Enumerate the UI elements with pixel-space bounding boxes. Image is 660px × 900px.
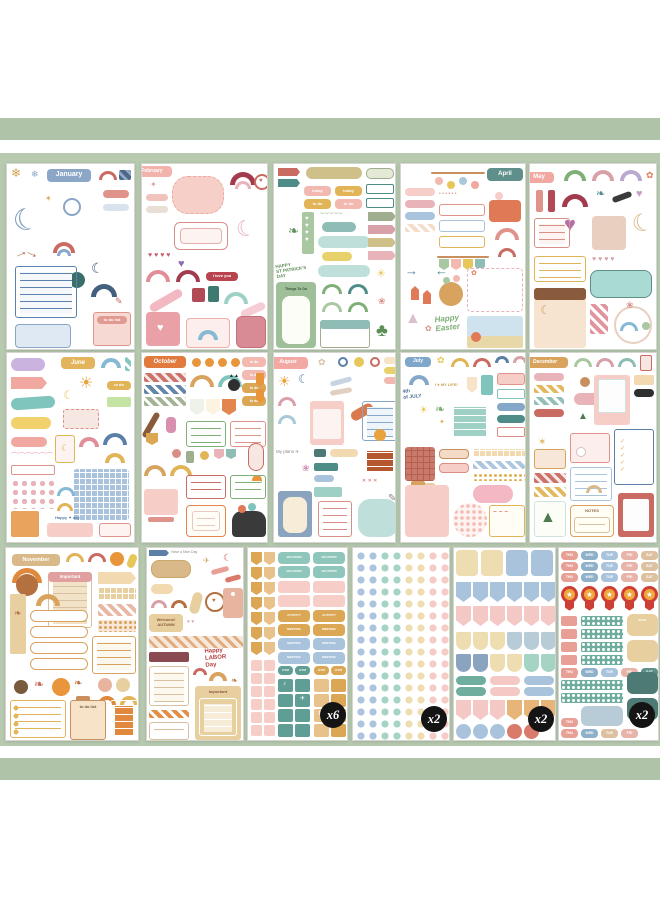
flag-sticker	[214, 449, 224, 459]
circ-sticker	[471, 332, 481, 342]
dotg-sticker	[561, 680, 623, 690]
dotg-sticker	[98, 620, 136, 632]
circ-sticker	[228, 379, 240, 391]
circ-sticker	[14, 680, 28, 694]
pill-sticker	[384, 367, 396, 374]
sticker-sheet-november: NovemberImportant❧❧❧to do list	[5, 547, 139, 741]
month-label: May	[529, 172, 554, 183]
award-ribbon-icon: ★	[621, 586, 638, 612]
lbl-sticker: Important	[48, 572, 92, 582]
lbl-sticker: GYM	[278, 666, 293, 675]
rect-sticker	[439, 236, 485, 248]
arch-sticker	[620, 170, 642, 181]
txt-sticker: ❧	[14, 608, 22, 618]
rect-sticker	[320, 320, 370, 329]
arch-sticker	[88, 553, 106, 562]
rect-sticker	[318, 236, 370, 248]
txt-sticker: • • • • • •	[439, 192, 456, 198]
rect-sticker	[208, 286, 219, 302]
arch-sticker	[596, 358, 614, 367]
circ-sticker	[231, 592, 235, 596]
txt-sticker: ✿	[646, 170, 654, 180]
rect-sticker	[30, 642, 88, 654]
txt-sticker: ⌒⌒⌒⌒⌒⌒	[11, 453, 53, 461]
dotg-sticker	[561, 693, 623, 703]
month-label: August	[273, 357, 308, 369]
flag-sticker	[524, 606, 539, 626]
txt-sticker: ♥	[636, 188, 643, 201]
txt-sticker: ☾	[629, 208, 657, 240]
rect-sticker	[634, 375, 654, 385]
pill-sticker	[11, 358, 45, 371]
lbl-sticker: MEETING	[313, 638, 345, 650]
circ-sticker	[447, 181, 455, 189]
circ-sticker	[218, 358, 227, 367]
arch-sticker	[562, 194, 588, 207]
month-label: December	[529, 357, 568, 368]
flag-sticker	[264, 597, 275, 610]
txt-sticker: ☾	[61, 443, 69, 453]
rect-sticker	[251, 712, 262, 723]
circ-sticker	[248, 503, 256, 511]
txt-sticker: 4th of JULY	[402, 388, 422, 401]
arch-sticker	[151, 600, 167, 608]
month-label: November	[12, 554, 60, 566]
top-divider-band	[0, 118, 660, 140]
list-sticker	[449, 401, 491, 441]
arch-sticker	[322, 302, 342, 312]
lbl-sticker: ACTIVITY	[278, 610, 310, 622]
rect-sticker	[10, 594, 26, 654]
txt-sticker: Have a Nice Day	[171, 550, 197, 554]
pill-sticker	[330, 387, 353, 396]
arrw-sticker	[11, 377, 47, 389]
rect-sticker	[534, 449, 566, 469]
lbl-sticker: ACTIVITY	[313, 610, 345, 622]
flag-sticker	[456, 582, 471, 602]
rect-sticker	[314, 449, 326, 457]
arrw-sticker	[98, 572, 136, 584]
lbl-sticker: SAT	[641, 562, 658, 571]
lbl-sticker: VACATION	[278, 566, 310, 578]
arrw-sticker	[149, 550, 169, 556]
sticker-sheet-june: June☀to do☾☾⌒⌒⌒⌒⌒⌒Happy ✦ day	[6, 352, 135, 543]
list-sticker	[92, 636, 136, 674]
rect-sticker	[314, 679, 329, 692]
circ-sticker	[200, 451, 209, 460]
lbl-sticker: FRI	[621, 729, 638, 738]
lbl-sticker: WED	[581, 573, 598, 582]
lbl-sticker: THU	[561, 573, 578, 582]
rect-sticker	[561, 655, 577, 665]
arch-sticker	[495, 228, 519, 240]
plane-icon: ✈	[300, 696, 305, 703]
dotg-sticker	[473, 473, 525, 481]
flag-sticker	[206, 399, 220, 415]
rect-sticker	[634, 389, 654, 397]
rect-sticker	[640, 355, 652, 371]
txt-sticker: ♥	[178, 258, 185, 271]
rect-sticker	[295, 679, 310, 692]
flag-sticker	[264, 642, 275, 655]
sticker-sheet-october: Octoberto doto doto doto do▲▲	[141, 352, 268, 543]
quantity-badge: x2	[528, 706, 554, 732]
rect-sticker	[313, 409, 341, 439]
washi-sticker	[144, 373, 186, 382]
circ-sticker	[471, 181, 479, 189]
lbl-sticker: TUE	[601, 573, 618, 582]
txt-sticker: →	[405, 264, 418, 279]
arch-sticker	[618, 358, 636, 367]
lbl-sticker: to do	[107, 381, 131, 390]
rect-sticker	[251, 699, 262, 710]
bottom-divider-band	[0, 758, 660, 780]
rect-sticker	[295, 724, 310, 737]
rect-sticker	[561, 616, 577, 626]
rect-sticker	[439, 220, 485, 232]
list-sticker	[534, 218, 570, 248]
washi-sticker	[534, 385, 564, 393]
rect-sticker	[561, 642, 577, 652]
lbl-sticker: WED	[581, 729, 598, 738]
rect-sticker	[548, 190, 555, 212]
lbl-sticker: NOTES	[582, 508, 602, 514]
txt-sticker: ❄	[31, 169, 39, 179]
list-sticker	[192, 511, 220, 531]
txt-sticker: ♣	[376, 320, 388, 341]
arch-sticker	[146, 270, 170, 282]
flag-sticker	[411, 286, 419, 300]
lbl-sticker: FRI	[621, 562, 638, 571]
rect-sticker	[314, 487, 342, 497]
txt-sticker: ☾	[63, 389, 74, 403]
flag-sticker	[507, 582, 522, 602]
rect-sticker	[282, 296, 310, 344]
rect-sticker	[541, 632, 556, 650]
flag-sticker	[264, 582, 275, 595]
rect-sticker	[11, 395, 56, 410]
arch-sticker	[57, 503, 73, 511]
txt-sticker: ❧	[435, 403, 445, 417]
lbl-sticker: GYM	[295, 666, 310, 675]
rect-sticker	[192, 288, 205, 302]
month-label: February	[141, 166, 172, 177]
rect-sticker	[63, 409, 99, 429]
rect-sticker	[366, 184, 394, 194]
lbl-sticker: MEETING	[313, 624, 345, 636]
pill-sticker	[306, 167, 362, 179]
month-label: June	[61, 357, 95, 369]
txt-sticker: HAPPY ST PATRICK'S DAY	[275, 260, 307, 280]
txt-sticker: ☀	[278, 373, 291, 389]
rect-sticker	[186, 451, 194, 463]
rect-sticker	[627, 640, 658, 662]
circ-sticker	[110, 552, 124, 566]
plaid-sticker	[473, 449, 525, 457]
rect-sticker	[536, 190, 543, 212]
circ-sticker	[192, 358, 201, 367]
circ-sticker	[435, 177, 443, 185]
lbl-sticker: VACATION	[313, 566, 345, 578]
lbl-sticker: today	[304, 186, 331, 196]
lbl-sticker: SAT	[641, 551, 658, 560]
txt-sticker: Happy Easter	[434, 313, 460, 334]
rect-sticker	[264, 673, 275, 684]
flag-sticker	[507, 700, 522, 720]
sticker-sheet-april: April• • • • • •→←✿▲Happy Easter✿	[400, 163, 526, 350]
rect-sticker	[30, 658, 88, 670]
rect-sticker	[278, 581, 310, 593]
pill-sticker	[188, 591, 203, 615]
arch-sticker	[495, 356, 509, 363]
lbl-sticker: THU	[561, 729, 578, 738]
rect-sticker	[313, 595, 345, 607]
flag-sticker	[541, 582, 556, 602]
rect-sticker	[236, 316, 266, 348]
sticker-sheet-july: July✿4th of JULYI ♥ MY LIFE!☀❧✦⌣ ⌣ ⌣	[400, 352, 526, 543]
txt-sticker: ❀	[626, 300, 634, 310]
lbl-sticker: to do	[242, 357, 266, 367]
circ-sticker	[116, 678, 130, 692]
rect-sticker	[295, 709, 310, 722]
arch-sticker	[322, 284, 342, 294]
pill-sticker	[490, 676, 520, 685]
lbl-sticker: WED	[581, 551, 598, 560]
pill-sticker	[330, 376, 353, 387]
pill-sticker	[405, 200, 435, 208]
arch-sticker	[193, 668, 207, 675]
rect-sticker	[278, 724, 293, 737]
flag-sticker	[467, 377, 477, 393]
rect-sticker	[456, 632, 471, 650]
rect-sticker	[278, 595, 310, 607]
txt-sticker: ✈	[203, 556, 210, 565]
txt-sticker: ✦	[439, 419, 445, 427]
circ-sticker	[52, 678, 70, 696]
arch-sticker	[224, 292, 248, 304]
arrw-sticker	[368, 212, 396, 221]
plaid-sticker	[73, 469, 129, 521]
circ-sticker	[172, 449, 181, 458]
washi-sticker	[149, 710, 189, 718]
lbl-sticker: VACATION	[278, 552, 310, 564]
pill-sticker	[384, 377, 396, 384]
rect-sticker	[11, 511, 39, 537]
rect-sticker	[524, 632, 539, 650]
list-sticker	[15, 266, 77, 318]
rect-sticker	[581, 706, 623, 726]
rect-sticker	[251, 673, 262, 684]
flag-sticker	[222, 399, 236, 415]
sticker-sheet-march: todaytodayto doto do♥ ♥ ♥ ♥⌣⌣⌣⌣⌣❧HAPPY S…	[273, 163, 396, 350]
rect-sticker	[623, 499, 649, 531]
txt-sticker: ♥ ♥ ♥ ♥	[592, 256, 614, 264]
flag-sticker	[264, 612, 275, 625]
pill-sticker	[456, 687, 486, 696]
rect-sticker	[313, 581, 345, 593]
dotg-sticker	[581, 616, 623, 626]
txt-sticker: ❀	[302, 463, 310, 473]
lbl-sticker: TUE	[601, 729, 618, 738]
arrw-sticker	[278, 168, 300, 176]
sticker-sheet-may: May✿❧♥♥☾♥ ♥ ♥ ♥☾❀	[529, 163, 657, 350]
lbl-sticker: Important	[199, 689, 237, 696]
list-sticker	[534, 256, 586, 282]
flag-sticker	[251, 612, 262, 625]
award-ribbon-icon: ★	[561, 586, 578, 612]
arch-sticker	[101, 358, 121, 368]
flag-sticker	[524, 582, 539, 602]
txt-sticker: ♥	[157, 322, 164, 335]
sticker-sheet-august: August✿☀☾My plans ✈❀✕ ✕ ✕✎	[273, 352, 396, 543]
txt-sticker: ♥ ♥ ♥ ♥	[305, 216, 309, 244]
pill-sticker	[405, 212, 435, 220]
award-ribbon-icon: ★	[641, 586, 658, 612]
sticker-sheet-january: ❄❄January☾✶→→☾to do list✎	[6, 163, 135, 350]
rect-sticker	[264, 660, 275, 671]
pill-sticker	[225, 574, 242, 583]
arch-sticker	[278, 397, 296, 406]
month-label: July	[405, 357, 431, 367]
month-label: October	[144, 356, 186, 368]
rect-sticker	[439, 204, 485, 216]
txt-sticker: I ♥ MY LIFE!	[435, 383, 458, 388]
arch-sticker	[564, 170, 586, 181]
pill-sticker	[330, 449, 358, 457]
lbl-sticker: FRI	[621, 573, 638, 582]
rect-sticker	[331, 679, 346, 692]
circ-sticker	[374, 429, 386, 441]
rect-sticker	[489, 200, 521, 222]
pill-sticker	[11, 437, 47, 447]
arch-sticker	[176, 270, 200, 282]
washi-sticker	[119, 170, 131, 180]
lbl-sticker: today	[335, 186, 362, 196]
txt-sticker: ✦	[150, 180, 157, 189]
rect-sticker	[248, 443, 264, 471]
txt-sticker: Happy ✦ day	[55, 516, 80, 521]
lbl-sticker: THU	[561, 718, 578, 727]
lbl-sticker: Things To Do	[278, 285, 314, 293]
rect-sticker	[251, 686, 262, 697]
flag-sticker	[190, 399, 204, 415]
list-sticker	[362, 445, 396, 475]
flag-sticker	[473, 700, 488, 720]
rect-sticker	[497, 427, 525, 437]
lbl-sticker: VACATION	[313, 552, 345, 564]
flag-sticker	[456, 606, 471, 626]
rect-sticker	[366, 168, 394, 179]
washi-sticker	[534, 487, 566, 497]
rect-sticker	[148, 517, 174, 522]
circ-sticker	[231, 358, 240, 367]
rect-sticker	[251, 660, 262, 671]
txt-sticker: ☾	[223, 553, 232, 565]
list-sticker	[149, 722, 189, 740]
rect-sticker	[490, 632, 505, 650]
circ-sticker	[354, 357, 364, 367]
txt-sticker: ❄	[11, 167, 21, 181]
ring-sticker	[338, 357, 348, 367]
sticker-sheet-september: Have a Nice Day✈☾♥Welcome! AUTUMN♥ ♥Happ…	[146, 547, 244, 741]
rect-sticker	[358, 499, 396, 537]
flag-sticker	[490, 582, 505, 602]
rect-sticker	[151, 584, 173, 594]
txt-sticker: ❧	[231, 676, 238, 685]
rect-sticker	[366, 198, 394, 208]
rect-sticker	[431, 172, 485, 174]
arch-sticker	[451, 358, 469, 367]
arch-sticker	[105, 453, 125, 463]
txt-sticker: ✿	[425, 324, 432, 333]
pill-sticker	[103, 190, 129, 198]
rect-sticker	[11, 417, 51, 429]
lbl-sticker: THU	[561, 668, 578, 677]
dotg-sticker	[379, 550, 403, 740]
txt-sticker: ▲	[540, 509, 556, 527]
washi-sticker	[144, 397, 186, 406]
pill-sticker	[524, 687, 554, 696]
flag-sticker	[507, 606, 522, 626]
arch-sticker	[209, 672, 227, 681]
lbl-sticker: GYM	[314, 666, 329, 675]
list-sticker	[570, 467, 612, 501]
pill-sticker	[534, 409, 564, 417]
washi-sticker	[144, 385, 186, 394]
circ-sticker	[453, 275, 460, 282]
lbl-sticker: MEETING	[278, 638, 310, 650]
arch-sticker	[99, 171, 117, 180]
txt-sticker: ☾	[9, 201, 44, 241]
arch-sticker	[278, 415, 296, 424]
circ-sticker	[507, 724, 522, 739]
arrw-sticker	[368, 251, 396, 260]
txt-sticker: ❧	[34, 678, 44, 692]
rect-sticker	[592, 216, 626, 250]
lbl-sticker: FRI	[621, 551, 638, 560]
rect-sticker	[283, 497, 307, 533]
flag-sticker	[251, 582, 262, 595]
pill-sticker	[146, 194, 168, 201]
circ-sticker	[238, 505, 246, 513]
ring-sticker	[370, 357, 380, 367]
rect-sticker	[506, 550, 528, 576]
arch-sticker	[66, 553, 84, 562]
txt-sticker: ▲	[578, 411, 588, 423]
txt-sticker: ❀	[378, 296, 386, 306]
rect-sticker	[473, 632, 488, 650]
plaid-sticker	[405, 447, 435, 481]
rect-sticker	[166, 417, 176, 433]
txt-sticker: ☀	[79, 375, 93, 393]
txt-sticker: ♥	[212, 598, 216, 605]
lbl-sticker: TUE	[601, 551, 618, 560]
flag-sticker	[251, 642, 262, 655]
circ-sticker	[98, 678, 112, 692]
rect-sticker	[144, 489, 178, 515]
list-sticker	[574, 517, 610, 533]
lbl-sticker: SAT	[641, 573, 658, 582]
rect-sticker	[524, 654, 539, 672]
dotg-sticker	[581, 642, 623, 652]
sticker-sheet-weekday-x2: THUTHUTHUWEDWEDWEDTUETUETUEFRIFRIFRISATS…	[558, 547, 659, 741]
rect-sticker	[278, 694, 293, 707]
lbl-sticker: MEETING	[278, 624, 310, 636]
arrw-sticker	[278, 179, 300, 187]
pill-sticker	[534, 373, 564, 381]
washi-sticker	[149, 636, 243, 648]
arrw-sticker	[368, 225, 396, 234]
